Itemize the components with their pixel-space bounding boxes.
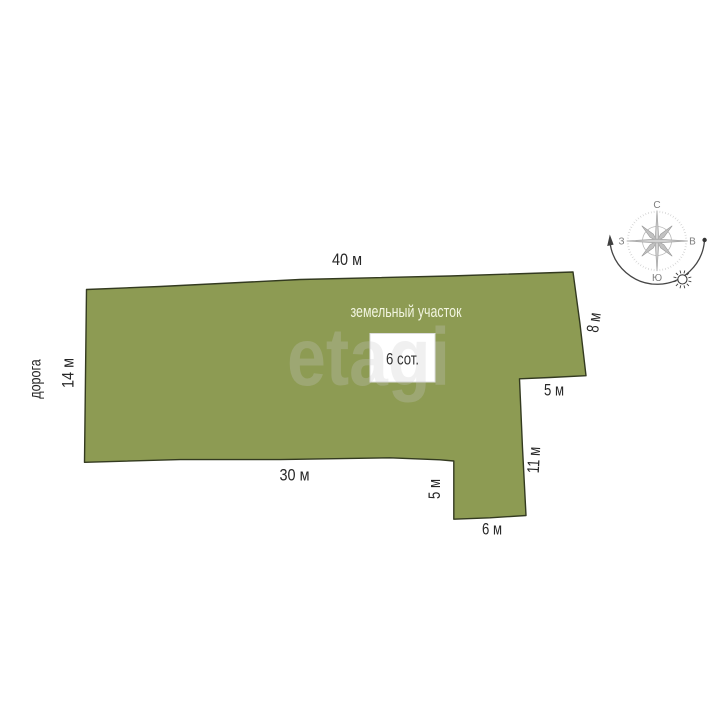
svg-text:С: С <box>653 200 660 211</box>
svg-text:дорога: дорога <box>28 359 45 399</box>
svg-text:30 м: 30 м <box>280 466 310 485</box>
svg-text:11 м: 11 м <box>524 446 544 473</box>
svg-text:6 сот.: 6 сот. <box>386 350 419 369</box>
svg-text:6 м: 6 м <box>482 520 502 539</box>
svg-text:З: З <box>618 237 624 248</box>
svg-text:8 м: 8 м <box>583 311 605 333</box>
svg-text:etagi: etagi <box>287 312 450 403</box>
svg-text:Ю: Ю <box>652 273 662 284</box>
svg-text:5 м: 5 м <box>544 381 564 400</box>
svg-text:40 м: 40 м <box>332 250 362 269</box>
svg-text:В: В <box>689 237 696 248</box>
svg-text:14 м: 14 м <box>59 358 78 388</box>
svg-text:5 м: 5 м <box>425 479 444 499</box>
